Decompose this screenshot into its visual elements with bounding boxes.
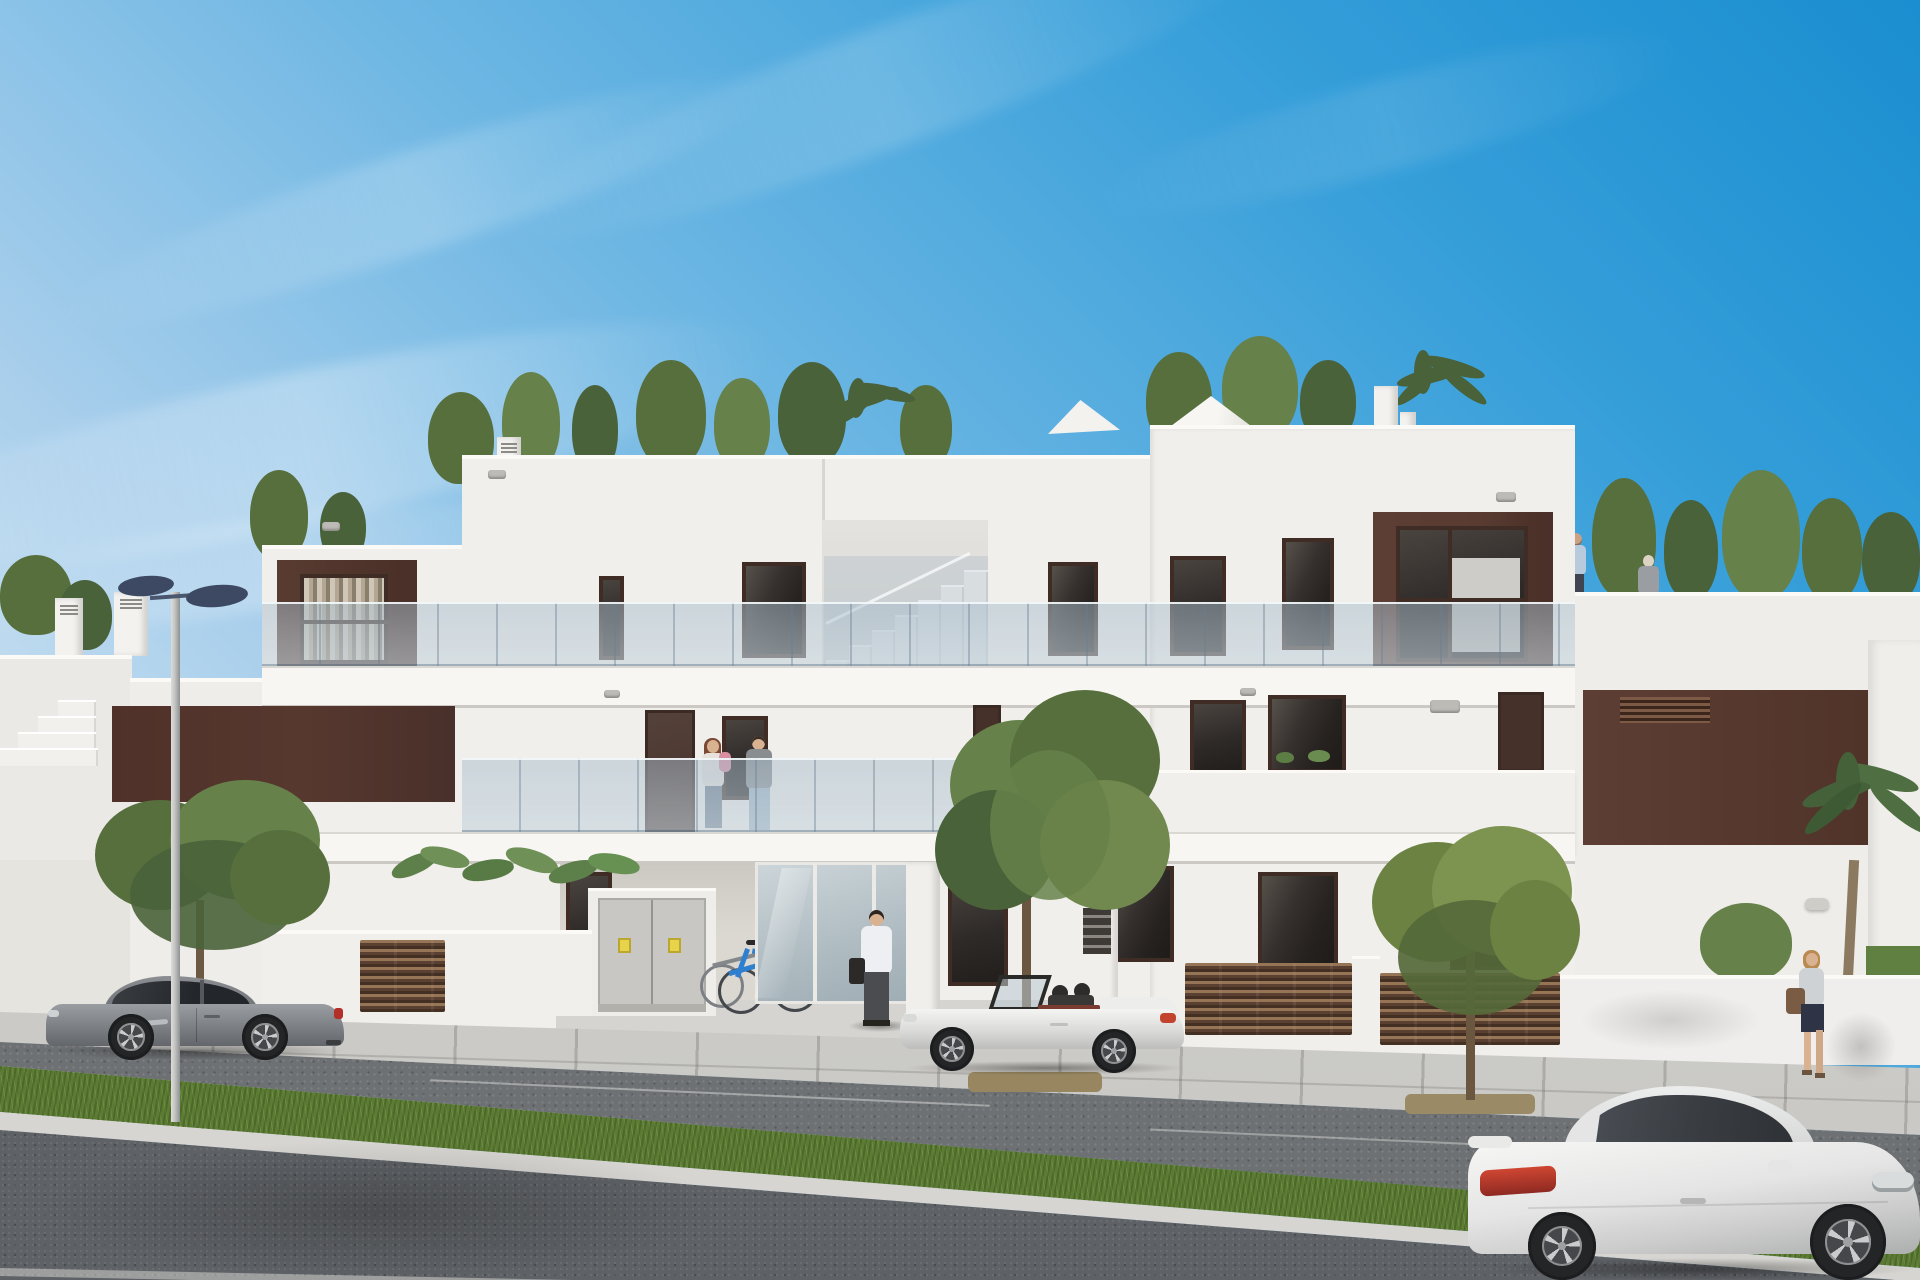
car-gray-coupe (46, 974, 346, 1066)
leg (1816, 1030, 1823, 1074)
slatted-gate (360, 940, 445, 1012)
scene-architectural-render (0, 0, 1920, 1280)
head (869, 910, 884, 926)
legs (864, 972, 889, 1022)
head (752, 736, 765, 750)
cabinet-door-gap (651, 900, 653, 1008)
grass-behind-wall (1866, 946, 1920, 978)
car-body (46, 1004, 344, 1046)
taillight (334, 1008, 343, 1019)
torso (1638, 566, 1659, 594)
exhaust (326, 1040, 341, 1045)
headlight (903, 1014, 917, 1022)
tree-shadow-road (40, 1140, 720, 1280)
door-handle (1050, 1023, 1068, 1026)
wall-vent (322, 522, 340, 531)
conifer (1722, 470, 1800, 600)
side-mirror (1768, 1160, 1792, 1173)
wheel-rim (117, 1023, 145, 1051)
wall-vent (604, 690, 620, 698)
rear-spoiler (1468, 1136, 1512, 1148)
wheel-hub (1843, 1237, 1853, 1247)
conifer (1802, 498, 1862, 602)
floor-slab (262, 666, 1575, 708)
conifer (1664, 500, 1718, 600)
wheel (108, 1014, 154, 1060)
blind-panel (1452, 558, 1520, 600)
door-handle (204, 1015, 220, 1018)
wheel-hub (262, 1034, 268, 1040)
shoes (1815, 1073, 1825, 1078)
car-white-coupe (1468, 1086, 1920, 1280)
mailboxes (1083, 908, 1111, 954)
conifer (636, 360, 706, 468)
taillight (1160, 1013, 1176, 1023)
shoes (863, 1020, 890, 1026)
wheel-hub (1558, 1242, 1567, 1251)
head (707, 740, 719, 753)
tree-canopy (230, 830, 330, 925)
wheel (242, 1014, 288, 1060)
balcony-plant (1308, 750, 1330, 762)
wheel-rim (1825, 1219, 1871, 1265)
entrance-mullion (813, 864, 817, 1002)
bush (1700, 903, 1792, 981)
shoes (1802, 1070, 1812, 1075)
tree-canopy (990, 750, 1110, 900)
wall-vent (1240, 688, 1256, 696)
balcony-plant (1276, 752, 1294, 763)
door-line (196, 1008, 197, 1042)
wheel-rim (251, 1023, 279, 1051)
chimney-vent-grill (501, 443, 517, 453)
chimney-vent-grill (60, 605, 78, 616)
tree-canopy (1490, 880, 1580, 980)
exterior-stair-step (0, 748, 98, 766)
car-white-convertible (900, 975, 1190, 1077)
cloud-streak (1079, 1, 1701, 248)
cabinet-plinth (598, 1004, 706, 1012)
middle-window (1190, 700, 1246, 774)
wheel (1528, 1212, 1596, 1280)
wall-vent (1496, 492, 1516, 502)
fence-pillar (1352, 956, 1380, 1038)
torso (861, 926, 892, 974)
warning-sticker (618, 938, 631, 953)
wall-vent (488, 470, 506, 479)
wheel (930, 1027, 974, 1071)
chimney-vent-grill (120, 599, 142, 611)
roof-shade-sail (1048, 400, 1120, 434)
wheel (1092, 1029, 1136, 1073)
wheel-hub (128, 1034, 134, 1040)
wheel-rim (1542, 1226, 1583, 1267)
headlight (1872, 1172, 1914, 1192)
bag (849, 958, 865, 984)
head (1806, 953, 1818, 966)
middle-door (1498, 692, 1544, 772)
taillight (1480, 1165, 1556, 1196)
wall-lamp (1805, 898, 1829, 910)
warning-sticker (668, 938, 681, 953)
wheel-rim (939, 1036, 965, 1062)
conifer (1862, 512, 1920, 604)
slatted-fence (1185, 963, 1352, 1035)
wheel (1810, 1204, 1886, 1280)
wheel-hub (949, 1046, 955, 1052)
conifer (778, 362, 846, 466)
lamp-pole (171, 592, 180, 1122)
wheel-hub (1111, 1048, 1117, 1054)
tree-shadow-on-wall (1580, 990, 1760, 1050)
ground-window (1258, 872, 1338, 968)
door-handle (1680, 1198, 1706, 1204)
louver-grille (1620, 697, 1710, 723)
headlight (48, 1010, 59, 1017)
wall-vent (1430, 700, 1460, 713)
skirt (1801, 1004, 1824, 1032)
leg (1804, 1032, 1811, 1072)
wheel-rim (1101, 1038, 1127, 1064)
glass-balustrade-upper (262, 602, 1575, 666)
